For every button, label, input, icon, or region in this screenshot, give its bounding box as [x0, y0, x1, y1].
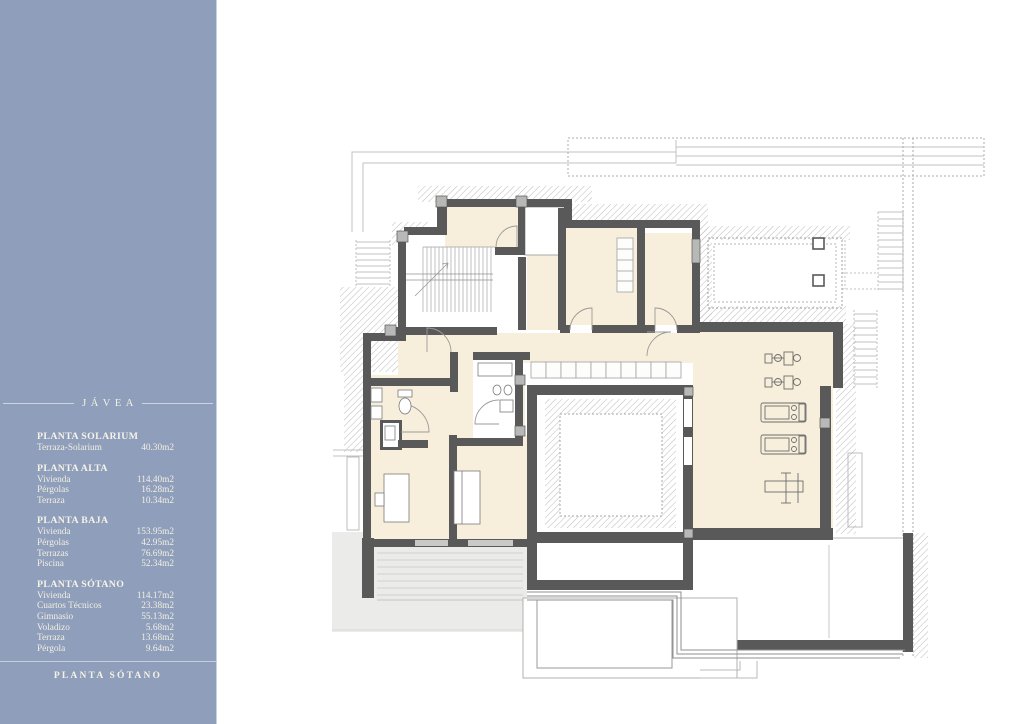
toilet-tank	[398, 390, 412, 397]
area-schedule: PLANTA SOLARIUM Terraza-Solarium 40.30m2…	[37, 431, 174, 663]
area-label: Terrazas	[37, 549, 68, 560]
toilet-bowl	[399, 398, 411, 414]
area-value: 52.34m2	[141, 559, 174, 570]
brand-rule-left	[3, 403, 74, 404]
pool	[537, 600, 672, 668]
footer-rule	[0, 661, 216, 662]
area-row: Pérgolas 42.95m2	[37, 538, 174, 549]
chair	[375, 493, 384, 506]
area-row: Terraza 10.34m2	[37, 496, 174, 507]
area-value: 114.40m2	[137, 475, 174, 486]
area-label: Piscina	[37, 559, 64, 570]
area-row: Vivienda 153.95m2	[37, 527, 174, 538]
exterior-stair-mid-right	[854, 310, 877, 390]
bed	[454, 471, 480, 524]
area-row: Voladizo 5.68m2	[37, 623, 174, 634]
area-label: Terraza	[37, 496, 65, 507]
area-row: Cuartos Técnicos 23.38m2	[37, 601, 174, 612]
sink	[371, 388, 382, 402]
area-value: 55.13m2	[141, 612, 174, 623]
footer-plan-label: PLANTA SÓTANO	[0, 671, 216, 681]
section-planta-alta: PLANTA ALTA Vivienda 114.40m2 Pérgolas 1…	[37, 463, 174, 507]
brand: JÁVEA	[0, 398, 216, 409]
area-row: Terraza-Solarium 40.30m2	[37, 443, 174, 454]
area-value: 10.34m2	[141, 496, 174, 507]
area-label: Pérgolas	[37, 538, 69, 549]
brand-title: JÁVEA	[74, 398, 142, 409]
sink	[371, 406, 382, 419]
area-row: Terrazas 76.69m2	[37, 549, 174, 560]
desk	[384, 474, 409, 522]
closet-room	[525, 207, 563, 255]
area-label: Terraza	[37, 633, 65, 644]
sidebar: JÁVEA PLANTA SOLARIUM Terraza-Solarium 4…	[0, 0, 217, 724]
area-label: Voladizo	[37, 623, 70, 634]
pergola-pillar	[813, 275, 824, 286]
area-label: Terraza-Solarium	[37, 443, 102, 454]
area-label: Gimnasio	[37, 612, 73, 623]
area-row: Pérgolas 16.28m2	[37, 485, 174, 496]
exterior-stair-top-right	[842, 212, 903, 290]
section-planta-baja: PLANTA BAJA Vivienda 153.95m2 Pérgolas 4…	[37, 515, 174, 569]
bathtub	[478, 363, 512, 376]
area-value: 5.68m2	[146, 623, 174, 634]
section-title: PLANTA SÓTANO	[37, 579, 174, 590]
area-value: 114.17m2	[137, 591, 174, 602]
area-row: Vivienda 114.40m2	[37, 475, 174, 486]
area-value: 16.28m2	[141, 485, 174, 496]
area-label: Cuartos Técnicos	[37, 601, 102, 612]
area-label: Vivienda	[37, 591, 71, 602]
section-title: PLANTA BAJA	[37, 515, 174, 526]
shaft-unit	[385, 426, 395, 440]
area-row: Vivienda 114.17m2	[37, 591, 174, 602]
exterior-stair-left	[356, 240, 390, 288]
area-value: 40.30m2	[141, 443, 174, 454]
area-value: 13.68m2	[141, 633, 174, 644]
wc	[500, 400, 513, 412]
section-title: PLANTA ALTA	[37, 463, 174, 474]
area-row: Gimnasio 55.13m2	[37, 612, 174, 623]
basin	[504, 385, 512, 395]
area-value: 76.69m2	[141, 549, 174, 560]
area-label: Pérgolas	[37, 485, 69, 496]
pergola-pillar	[813, 238, 824, 249]
basin	[493, 385, 501, 395]
area-row: Piscina 52.34m2	[37, 559, 174, 570]
section-planta-sotano: PLANTA SÓTANO Vivienda 114.17m2 Cuartos …	[37, 579, 174, 655]
section-title: PLANTA SOLARIUM	[37, 431, 174, 442]
upper-terrace-outline	[708, 238, 842, 308]
area-value: 23.38m2	[141, 601, 174, 612]
planter	[347, 457, 359, 530]
courtyard	[545, 399, 676, 528]
area-row: Terraza 13.68m2	[37, 633, 174, 644]
area-row: Pérgola 9.64m2	[37, 644, 174, 655]
area-value: 153.95m2	[137, 527, 174, 538]
area-label: Vivienda	[37, 475, 71, 486]
area-label: Vivienda	[37, 527, 71, 538]
area-label: Pérgola	[37, 644, 65, 655]
brand-rule-right	[142, 403, 213, 404]
area-value: 42.95m2	[141, 538, 174, 549]
area-value: 9.64m2	[146, 644, 174, 655]
page: JÁVEA PLANTA SOLARIUM Terraza-Solarium 4…	[0, 0, 1024, 724]
section-planta-solarium: PLANTA SOLARIUM Terraza-Solarium 40.30m2	[37, 431, 174, 454]
